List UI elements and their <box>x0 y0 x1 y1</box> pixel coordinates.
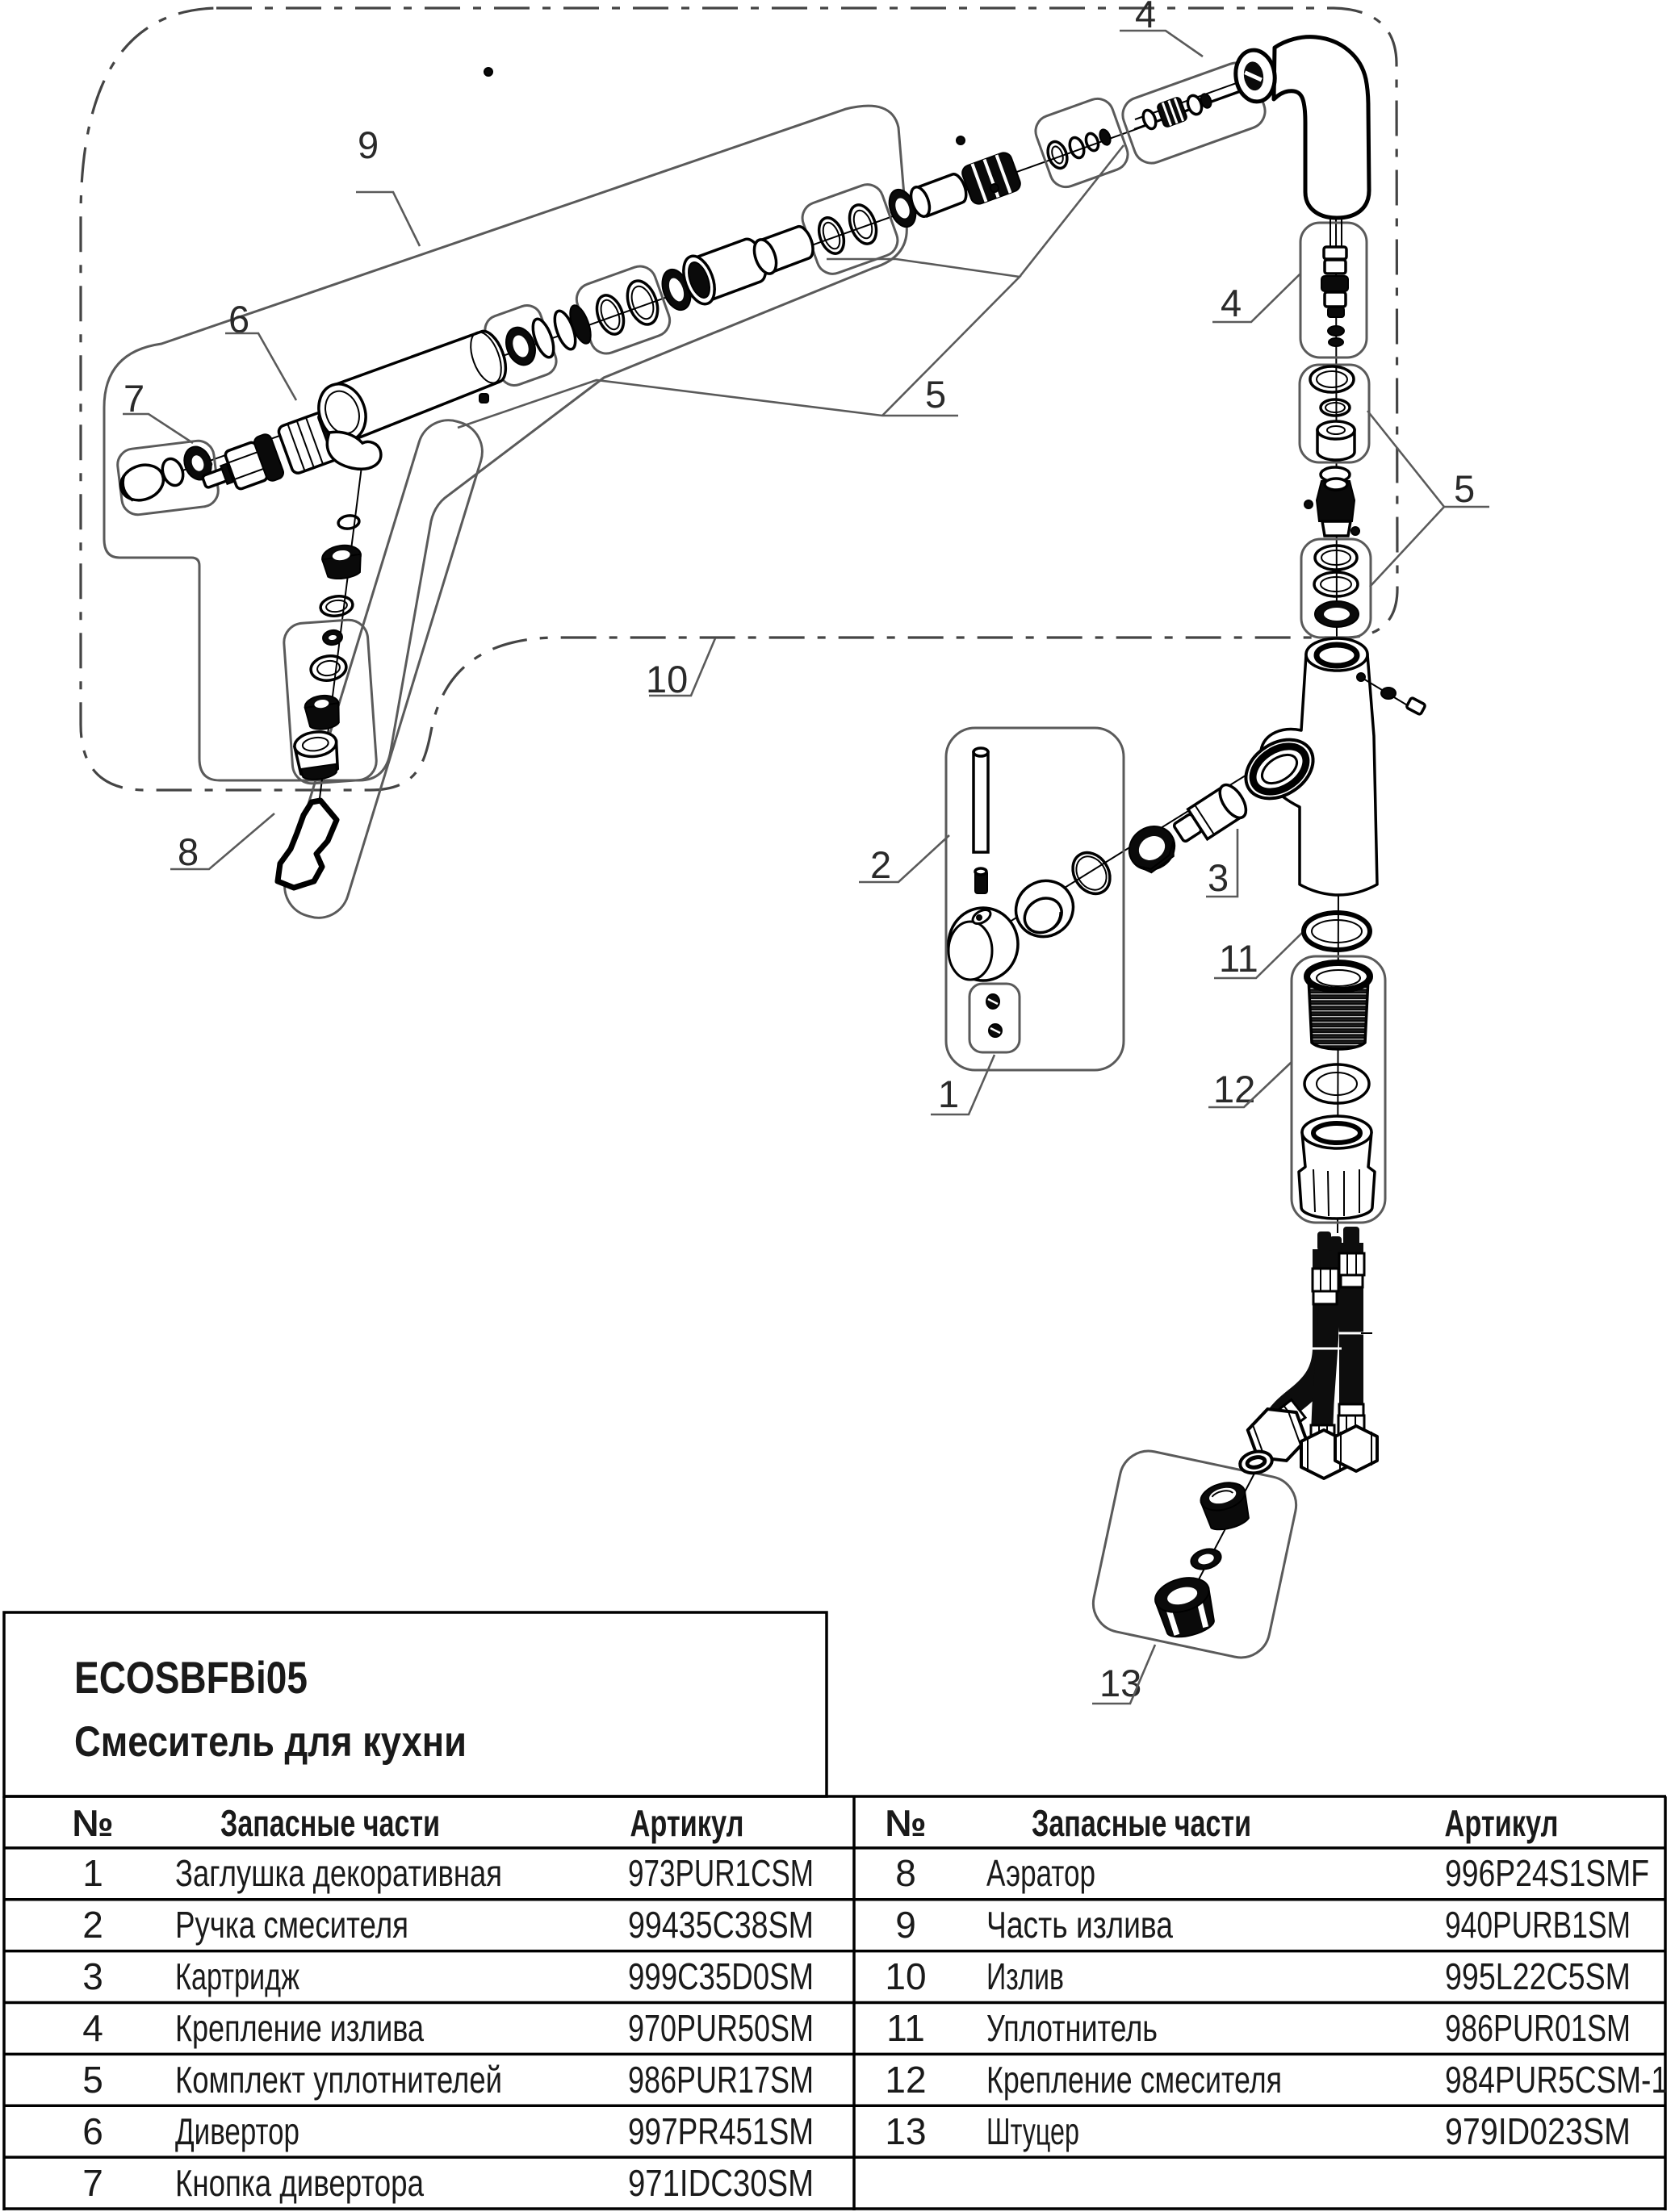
svg-text:Уплотнитель: Уплотнитель <box>986 2007 1158 2049</box>
svg-text:940PURB1SM: 940PURB1SM <box>1445 1904 1631 1946</box>
svg-text:13: 13 <box>1099 1662 1141 1704</box>
svg-text:2: 2 <box>870 843 891 886</box>
svg-text:Излив: Излив <box>986 1955 1064 1997</box>
svg-text:5: 5 <box>1454 467 1475 510</box>
svg-text:999C35D0SM: 999C35D0SM <box>628 1955 814 1997</box>
svg-text:986PUR01SM: 986PUR01SM <box>1445 2007 1631 2049</box>
svg-text:11: 11 <box>1219 937 1258 980</box>
svg-text:996P24S1SMF: 996P24S1SMF <box>1445 1852 1649 1894</box>
svg-text:10: 10 <box>646 658 688 700</box>
svg-text:973PUR1CSM: 973PUR1CSM <box>628 1852 814 1894</box>
svg-text:986PUR17SM: 986PUR17SM <box>628 2059 814 2101</box>
svg-text:12: 12 <box>885 2059 926 2101</box>
svg-text:970PUR50SM: 970PUR50SM <box>628 2007 814 2049</box>
svg-text:997PR451SM: 997PR451SM <box>628 2110 814 2152</box>
svg-text:Штуцер: Штуцер <box>986 2110 1079 2152</box>
svg-text:Смеситель для кухни: Смеситель для кухни <box>74 1718 467 1766</box>
svg-text:Картридж: Картридж <box>175 1955 299 1997</box>
svg-text:8: 8 <box>178 830 199 873</box>
svg-text:1: 1 <box>938 1073 959 1115</box>
svg-text:Кнопка дивертора: Кнопка дивертора <box>175 2162 424 2204</box>
svg-text:5: 5 <box>925 373 946 416</box>
svg-text:Аэратор: Аэратор <box>986 1852 1095 1894</box>
svg-text:Запасные части: Запасные части <box>220 1802 440 1844</box>
svg-text:10: 10 <box>885 1955 926 1997</box>
svg-text:ECOSBFBi05: ECOSBFBi05 <box>74 1652 308 1703</box>
svg-text:971IDC30SM: 971IDC30SM <box>628 2162 814 2204</box>
svg-text:5: 5 <box>82 2059 103 2101</box>
svg-text:7: 7 <box>82 2162 103 2204</box>
svg-text:Артикул: Артикул <box>1445 1802 1559 1844</box>
svg-text:8: 8 <box>895 1852 916 1894</box>
svg-text:13: 13 <box>885 2110 926 2152</box>
svg-text:4: 4 <box>82 2007 103 2049</box>
svg-text:3: 3 <box>1208 856 1229 899</box>
svg-text:6: 6 <box>82 2110 103 2152</box>
svg-text:Комплект уплотнителей: Комплект уплотнителей <box>175 2059 502 2101</box>
svg-text:№: № <box>885 1802 926 1844</box>
svg-text:995L22C5SM: 995L22C5SM <box>1445 1955 1631 1997</box>
svg-text:2: 2 <box>82 1904 103 1946</box>
svg-text:Дивертор: Дивертор <box>175 2110 299 2152</box>
svg-text:Ручка смесителя: Ручка смесителя <box>175 1904 408 1946</box>
svg-text:11: 11 <box>886 2007 925 2049</box>
svg-text:979ID023SM: 979ID023SM <box>1445 2110 1631 2152</box>
svg-text:№: № <box>72 1802 113 1844</box>
svg-text:4: 4 <box>1221 282 1242 324</box>
svg-text:Крепление смесителя: Крепление смесителя <box>986 2059 1282 2101</box>
svg-text:Артикул: Артикул <box>630 1802 744 1844</box>
svg-text:3: 3 <box>82 1955 103 1997</box>
svg-text:9: 9 <box>358 123 379 166</box>
svg-text:984PUR5CSM-1: 984PUR5CSM-1 <box>1445 2059 1668 2101</box>
svg-text:Крепление излива: Крепление излива <box>175 2007 424 2049</box>
svg-text:9: 9 <box>895 1904 916 1946</box>
svg-text:Заглушка декоративная: Заглушка декоративная <box>175 1852 502 1894</box>
svg-text:1: 1 <box>82 1852 103 1894</box>
svg-text:Часть излива: Часть излива <box>986 1904 1173 1946</box>
svg-text:12: 12 <box>1213 1068 1255 1110</box>
svg-text:99435C38SM: 99435C38SM <box>628 1904 814 1946</box>
svg-text:Запасные части: Запасные части <box>1032 1802 1251 1844</box>
